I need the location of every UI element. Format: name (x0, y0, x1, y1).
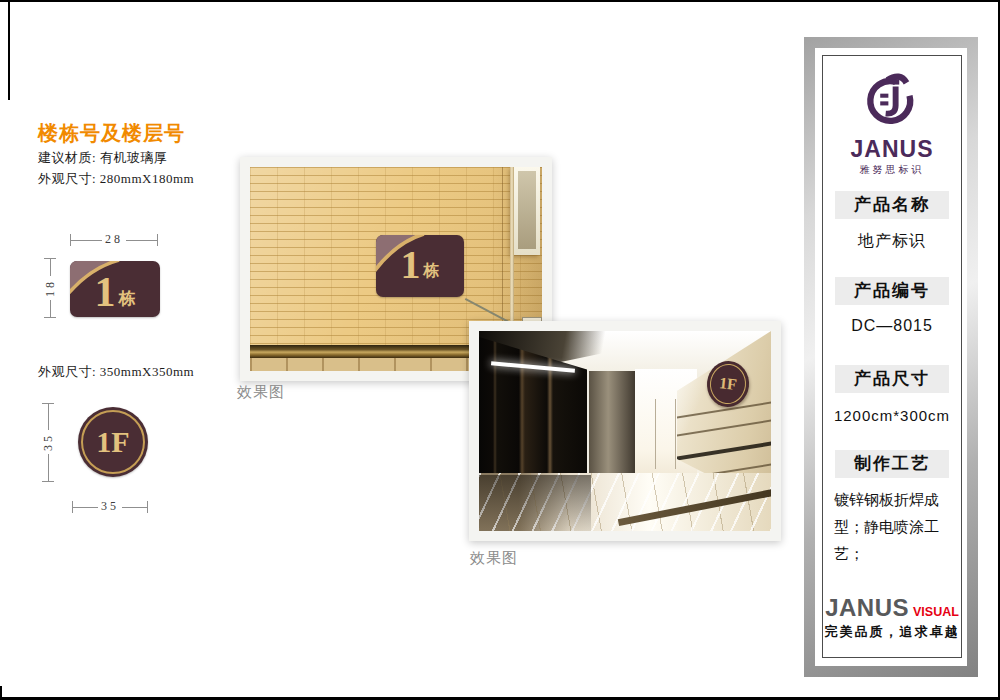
window (511, 167, 540, 255)
sign-label: 1F (705, 359, 752, 409)
sign-number: 1 (95, 271, 116, 313)
dim-height-label: 35 (42, 430, 55, 454)
section-header-craft: 制作工艺 (835, 450, 949, 478)
dim-height-label: 18 (44, 276, 57, 300)
door-frame-line (655, 399, 656, 469)
photo1-caption: 效果图 (237, 383, 285, 402)
page-title: 楼栋号及楼层号 (38, 120, 185, 147)
material-spec-text: 建议材质: 有机玻璃厚 (38, 149, 167, 167)
craft-value: 镀锌钢板折焊成型；静电喷涂工艺； (834, 486, 952, 567)
size-spec-text-1: 外观尺寸: 280mmX180mm (38, 170, 194, 188)
sign-label: 1F (78, 407, 148, 477)
dim-tick (42, 481, 54, 482)
footer-brand-suffix: VISUAL (913, 605, 959, 619)
dim-tick (70, 234, 71, 246)
mounted-building-sign: 1 栋 (376, 235, 464, 297)
sign-suffix: 栋 (119, 290, 136, 307)
dim-tick (147, 501, 148, 513)
sign-text: 1 栋 (376, 235, 464, 297)
dim-tick (44, 258, 56, 259)
section-header-product-name: 产品名称 (835, 191, 949, 219)
product-panel: JANUS 雅努思标识 产品名称 地产标识 产品编号 DC—8015 产品尺寸 … (822, 55, 962, 658)
footer-logo: JANUS VISUAL (823, 594, 961, 622)
product-name-value: 地产标识 (823, 231, 961, 252)
spec-sheet-page: 楼栋号及楼层号 建议材质: 有机玻璃厚 外观尺寸: 280mmX180mm 28… (0, 0, 1000, 700)
section-header-product-size: 产品尺寸 (835, 365, 949, 393)
photo2-caption: 效果图 (470, 549, 518, 568)
product-code-value: DC—8015 (823, 317, 961, 335)
dim-tick (44, 317, 56, 318)
size-spec-text-2: 外观尺寸: 350mmX350mm (38, 363, 194, 381)
drain-pipe (510, 167, 514, 345)
page-border-left-bottom (0, 686, 2, 700)
dim-tick (42, 403, 54, 404)
sign-number: 1 (401, 245, 421, 285)
door-frame-line (675, 399, 676, 469)
photo-elevator-lobby: 1F (479, 331, 771, 531)
section-header-product-code: 产品编号 (835, 277, 949, 305)
dim-tick (72, 501, 73, 513)
sign-text: 1 栋 (70, 261, 160, 317)
dim-tick (157, 234, 158, 246)
page-border-left-top (8, 0, 10, 100)
dim-width-label: 28 (102, 233, 126, 246)
footer-brand-name: JANUS (825, 594, 909, 622)
page-border-top (0, 0, 1000, 2)
window-pane (518, 171, 536, 249)
effect-photo-lobby: 1F (469, 321, 781, 541)
brand-slogan: 完美品质，追求卓越 (823, 623, 961, 641)
elevator-doors-far (587, 371, 637, 481)
floor-elevator-reflection (479, 475, 591, 531)
brand-name: JANUS (823, 136, 961, 163)
janus-logo-icon (823, 68, 961, 132)
sign-suffix: 栋 (424, 263, 440, 279)
mounted-floor-sign: 1F (705, 359, 752, 409)
dim-width-label: 35 (98, 500, 122, 513)
building-number-sign: 1 栋 (70, 261, 160, 317)
brand-subtitle: 雅努思标识 (823, 163, 961, 177)
product-size-value: 1200cm*300cm (823, 407, 961, 424)
floor-number-sign: 1F (78, 407, 148, 477)
